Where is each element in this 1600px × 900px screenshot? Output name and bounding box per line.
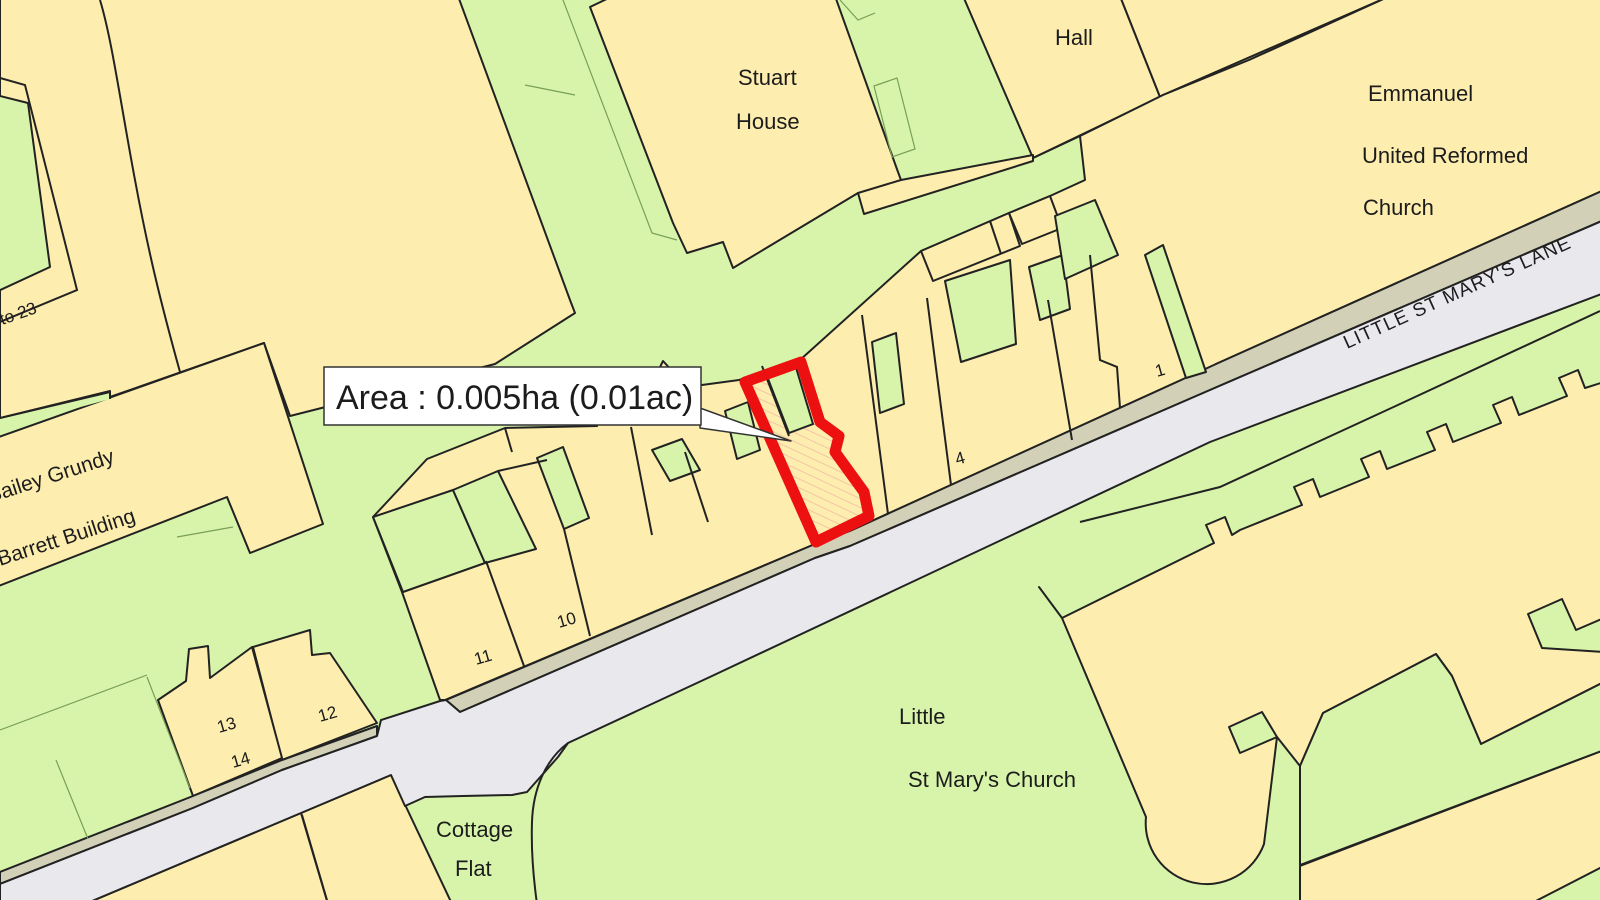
svg-text:Little: Little	[899, 704, 945, 729]
svg-text:Stuart: Stuart	[738, 65, 797, 90]
svg-text:House: House	[736, 109, 800, 134]
svg-text:United Reformed: United Reformed	[1362, 143, 1528, 168]
svg-text:Area : 0.005ha (0.01ac): Area : 0.005ha (0.01ac)	[336, 379, 693, 417]
svg-text:Church: Church	[1363, 195, 1434, 220]
svg-text:Cottage: Cottage	[436, 817, 513, 842]
svg-text:Flat: Flat	[455, 856, 492, 881]
svg-text:Hall: Hall	[1055, 25, 1093, 50]
svg-text:St Mary's Church: St Mary's Church	[908, 767, 1076, 792]
svg-text:Emmanuel: Emmanuel	[1368, 81, 1473, 106]
